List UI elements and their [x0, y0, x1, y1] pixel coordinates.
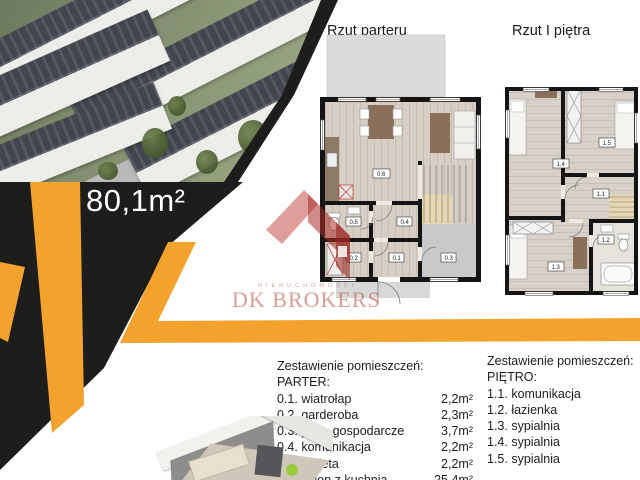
- interior-plant: [286, 464, 298, 476]
- room-label: 1.1. komunikacja: [487, 386, 581, 402]
- room-area: 2,3m²: [441, 407, 473, 423]
- entrance-step: [336, 282, 430, 298]
- desk-1-3: [573, 237, 587, 269]
- tree: [168, 96, 186, 116]
- room-tag-salon: 0.6: [377, 172, 386, 178]
- area-label: 80,1m²: [86, 183, 226, 219]
- room-area: 3,7m²: [441, 423, 473, 439]
- room-tag-1-5: 1.5: [603, 141, 612, 147]
- room-label: 1.3. sypialnia: [487, 418, 560, 434]
- room-label: 0.1. wiatrołap: [277, 391, 351, 407]
- room-tag-toaleta: 0.5: [350, 220, 359, 226]
- list-item: 1.3. sypialnia: [487, 418, 637, 434]
- list-item: 1.2. łazienka: [487, 402, 637, 418]
- list-item: 1.1. komunikacja: [487, 386, 637, 402]
- interior-door: [255, 445, 284, 478]
- room-tag-gospodarcze: 0.3: [445, 256, 454, 262]
- wardrobe-1-3: [513, 222, 553, 234]
- room-area: 2,2m²: [441, 456, 473, 472]
- first-floor-plan-title: Rzut I piętra: [512, 23, 590, 39]
- room-tag-garderoba: 0.2: [350, 256, 359, 262]
- room-label: 1.4. sypialnia: [487, 434, 560, 450]
- room-area: 2,2m²: [441, 391, 473, 407]
- room-label: 1.5. sypialnia: [487, 451, 560, 467]
- room-tag-1-4: 1.4: [557, 162, 566, 168]
- room-tag-komunikacja: 0.4: [401, 220, 410, 226]
- room-list-first: Zestawienie pomieszczeń: PIĘTRO: 1.1. ko…: [487, 353, 637, 467]
- sofa: [454, 111, 475, 159]
- wardrobe-top: [567, 89, 581, 143]
- room-tag-1-3: 1.3: [552, 265, 561, 271]
- wardrobe: [327, 244, 343, 275]
- terrace: [327, 35, 445, 97]
- ground-floor-plan: 0.6 0.5 0.4 0.2 0.1 0.3: [318, 25, 484, 325]
- room-label: 1.2. łazienka: [487, 402, 557, 418]
- room-area: 25,4m²: [434, 472, 473, 480]
- tree: [196, 150, 218, 174]
- room-list-first-title: Zestawienie pomieszczeń:: [487, 353, 637, 369]
- bed-1-4: [509, 99, 526, 155]
- room-tag-1-1: 1.1: [597, 192, 606, 198]
- room-list-ground-title: Zestawienie pomieszczeń:: [277, 358, 473, 374]
- flyer-page: 80,1m² Rzut parteru Rzut I piętra: [0, 0, 640, 480]
- room-area: 2,2m²: [441, 439, 473, 455]
- bed-1-5: [615, 101, 636, 149]
- list-item: 1.5. sypialnia: [487, 451, 637, 467]
- room-list-first-floor: PIĘTRO:: [487, 369, 637, 385]
- stairs-first: [609, 195, 634, 219]
- first-floor-plan: 1.4 1.5 1.1 1.3 1.2: [505, 85, 638, 298]
- tree: [142, 128, 168, 158]
- tree: [98, 162, 118, 180]
- room-tag-wiatrolap: 0.1: [393, 256, 402, 262]
- room-tag-1-2: 1.2: [602, 238, 611, 244]
- utility-room-floor: [422, 225, 476, 277]
- list-item: 1.4. sypialnia: [487, 434, 637, 450]
- coffee-table: [430, 113, 450, 153]
- list-item: 0.1. wiatrołap 2,2m²: [277, 391, 473, 407]
- interior-render-photo: [138, 416, 333, 480]
- room-list-ground-floor: PARTER:: [277, 374, 473, 390]
